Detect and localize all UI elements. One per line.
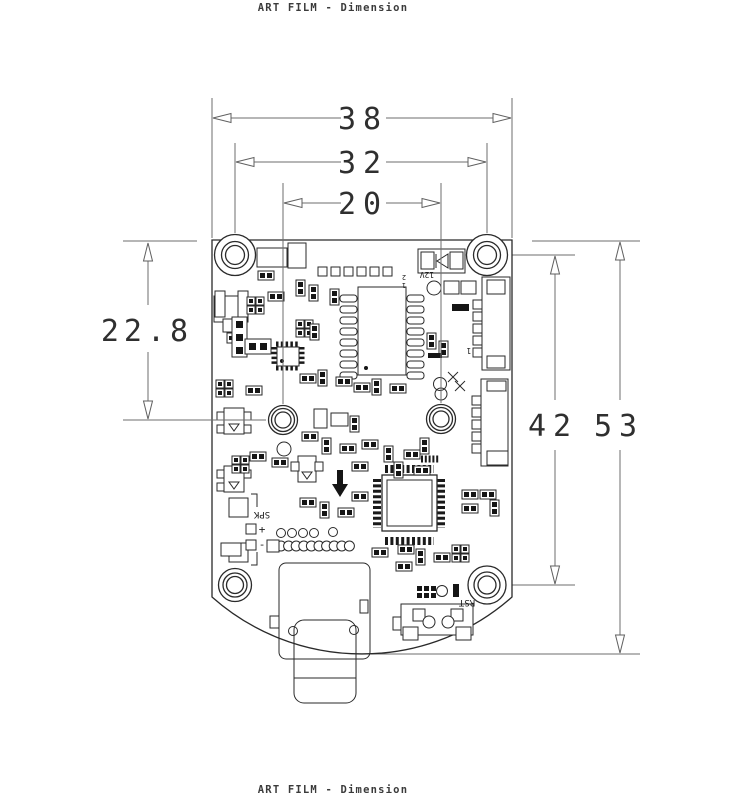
dim-label-38: 38 — [338, 102, 388, 137]
dim-label-20: 20 — [338, 187, 388, 222]
dimension-right-42: 42 — [528, 256, 578, 584]
mounting-hole-mid-right — [427, 405, 456, 434]
art-film-dimension-drawing: ART FILM - Dimension ART FILM - Dimensio… — [0, 0, 741, 806]
dim-label-32: 32 — [338, 146, 388, 181]
mounting-hole-top-left — [215, 235, 256, 276]
mounting-hole-top-right — [467, 235, 508, 276]
dimension-drawing-canvas: ART FILM - Dimension ART FILM - Dimensio… — [0, 0, 741, 806]
title-bottom: ART FILM - Dimension — [258, 784, 408, 796]
dim-label-22-8: 22.8 — [101, 314, 193, 349]
dimension-mid-hole-span-20: 20 — [284, 187, 440, 222]
title-top: ART FILM - Dimension — [258, 2, 408, 14]
silk-label-rst: RST — [458, 597, 475, 607]
silk-label-conn-pin1: 1 — [466, 346, 471, 355]
silk-label-12v: 12V — [420, 270, 435, 279]
dimension-left-22-8: 22.8 — [101, 243, 193, 419]
qfn-ic — [274, 344, 302, 368]
mounting-hole-bottom-left — [219, 569, 252, 602]
mounting-hole-bottom-right — [468, 566, 506, 604]
silk-label-plus: + — [259, 523, 266, 536]
silk-label-pin1: 1 — [402, 281, 406, 289]
dimension-right-53: 53 — [594, 242, 644, 653]
dim-label-42: 42 — [528, 409, 578, 444]
soic-ic — [340, 287, 424, 379]
silk-label-minus: - — [259, 538, 266, 551]
silk-label-pin2: 2 — [402, 273, 406, 281]
top-connector-b — [288, 243, 306, 268]
silk-circle — [427, 281, 441, 295]
mounting-hole-mid-left — [269, 406, 298, 435]
qfp-ic — [377, 469, 441, 541]
dim-label-53: 53 — [594, 409, 644, 444]
dimension-top-hole-span-32: 32 — [236, 146, 486, 181]
dimension-board-width-38: 38 — [213, 102, 511, 137]
silk-label-spk: SPK — [253, 509, 270, 519]
